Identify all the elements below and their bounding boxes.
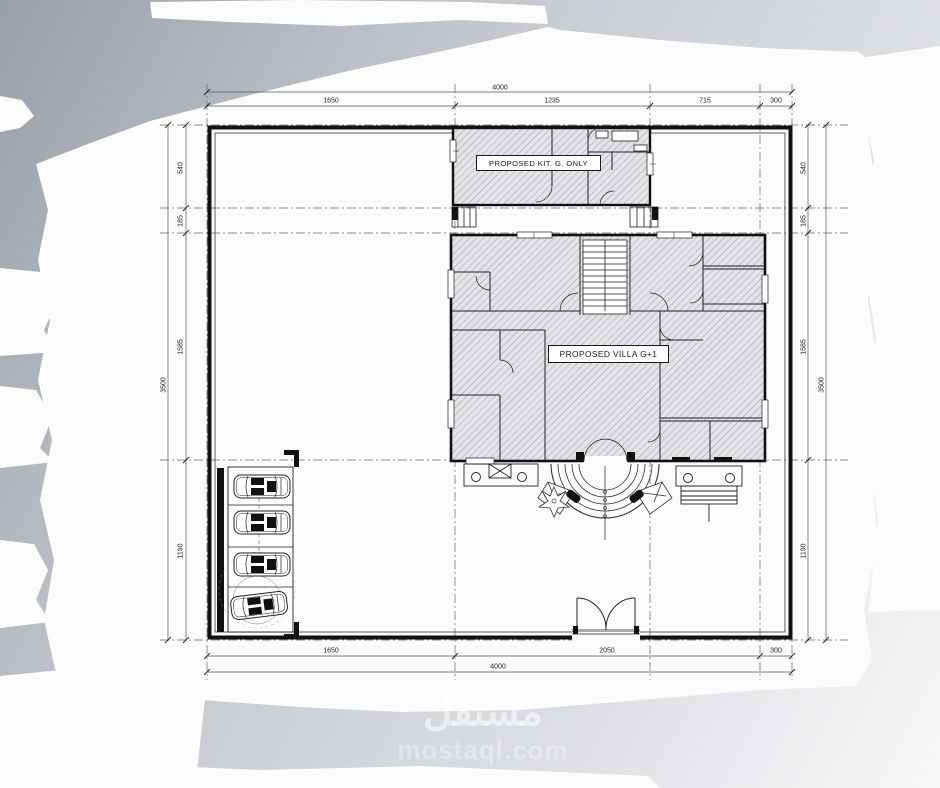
car-2 (234, 511, 290, 534)
parking-area (217, 450, 299, 639)
kitchen-side-steps (452, 207, 658, 227)
dim-right-seg-3: 1585 (801, 339, 808, 355)
dim-right-seg-4: 1190 (801, 543, 808, 558)
right-porch (676, 466, 742, 522)
dim-bottom-seg-2: 2050 (599, 648, 615, 655)
kitchen-block (450, 128, 658, 227)
dim-top-seg-1: 1650 (323, 98, 339, 105)
dim-right-overall: 3500 (819, 377, 826, 393)
dim-top-overall: 4000 (492, 85, 508, 92)
floor-plan-drawing (0, 0, 940, 788)
dim-bottom-seg-3: 300 (770, 648, 782, 655)
dim-top-seg-2: 1235 (544, 98, 560, 105)
dim-right-seg-1: 540 (801, 162, 808, 174)
dim-bottom-seg-1: 1650 (323, 648, 339, 655)
dim-right-seg-2: 185 (801, 215, 808, 227)
kitchen-label: PROPOSED KIT. G. ONLY (476, 155, 601, 171)
dim-left-seg-1: 540 (178, 162, 185, 174)
watermark-arabic: مستقل (388, 690, 578, 734)
car-1 (234, 475, 290, 498)
villa-label: PROPOSED VILLA G+1 (548, 345, 669, 363)
left-porch (464, 464, 538, 486)
main-gate (572, 598, 640, 642)
dim-bottom-overall: 4000 (490, 664, 506, 671)
watermark-latin: mostaql.com (388, 735, 578, 766)
dim-left-seg-3: 1585 (178, 339, 185, 355)
dim-top-seg-3: 715 (699, 98, 711, 105)
dim-top-seg-4: 300 (770, 98, 782, 105)
villa-staircase (583, 240, 627, 314)
dim-left-overall: 3500 (161, 377, 168, 393)
car-3 (234, 553, 290, 576)
dim-left-seg-4: 1190 (178, 543, 185, 558)
dim-left-seg-2: 185 (178, 215, 185, 227)
